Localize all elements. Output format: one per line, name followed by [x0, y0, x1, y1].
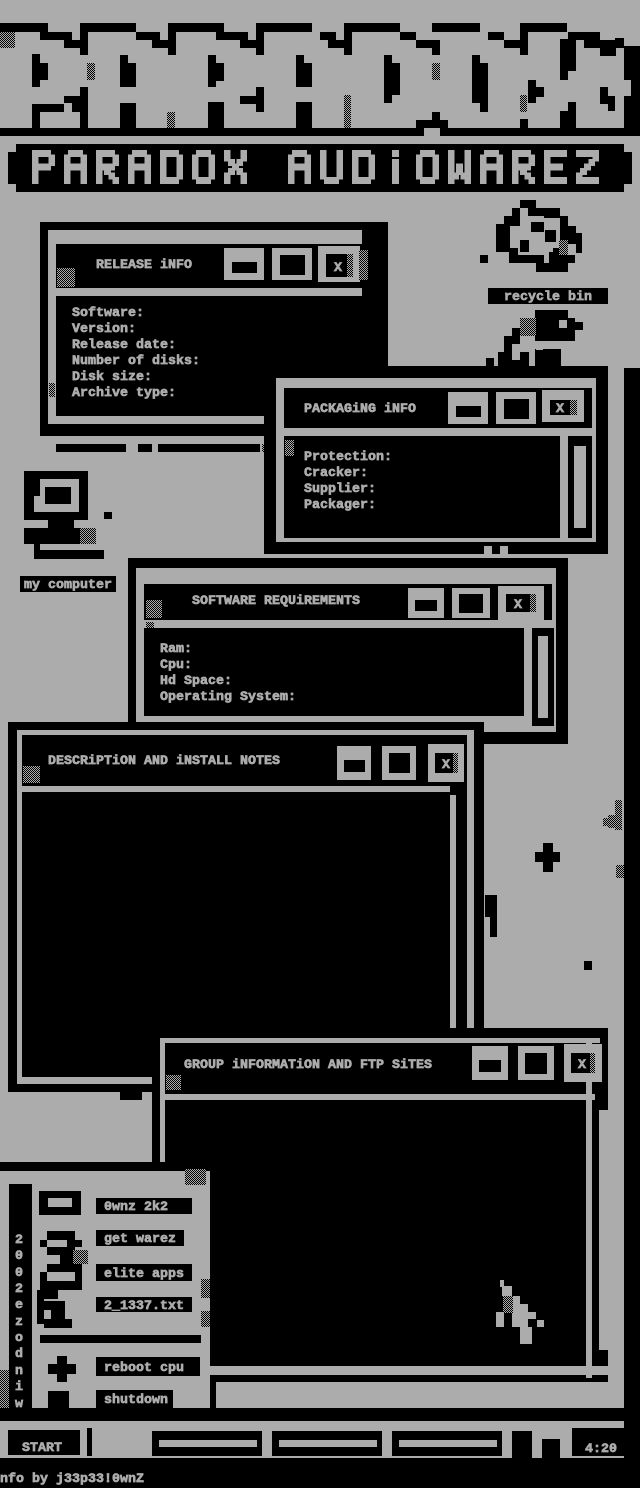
svg-text:i: i — [15, 1380, 23, 1395]
svg-text:e: e — [15, 1298, 23, 1313]
svg-text:X: X — [334, 261, 342, 276]
svg-text:recycle bin: recycle bin — [504, 290, 592, 305]
svg-text:z: z — [15, 1315, 23, 1330]
svg-text:X: X — [514, 598, 522, 613]
svg-text:0wnz 2k2: 0wnz 2k2 — [104, 1200, 168, 1215]
svg-text:Hd Space:: Hd Space: — [160, 674, 232, 689]
svg-text:0: 0 — [15, 1266, 23, 1281]
svg-text:elite apps: elite apps — [104, 1267, 184, 1282]
svg-text:Ram:: Ram: — [160, 642, 192, 657]
svg-text:nfo by j33p33!0wnZ: nfo by j33p33!0wnZ — [0, 1472, 144, 1487]
svg-text:SOFTWARE REQUiREMENTS: SOFTWARE REQUiREMENTS — [192, 594, 360, 609]
svg-text:Version:: Version: — [72, 322, 136, 337]
svg-text:2_1337.txt: 2_1337.txt — [104, 1299, 184, 1314]
svg-text:Cpu:: Cpu: — [160, 658, 192, 673]
svg-text:X: X — [578, 1058, 586, 1073]
svg-text:START: START — [22, 1441, 62, 1456]
svg-text:n: n — [15, 1364, 23, 1379]
svg-text:RELEASE iNFO: RELEASE iNFO — [96, 258, 192, 273]
svg-text:X: X — [442, 758, 450, 773]
svg-text:2: 2 — [15, 1233, 23, 1248]
svg-text:d: d — [15, 1347, 23, 1362]
svg-text:DESCRiPTiON AND iNSTALL NOTES: DESCRiPTiON AND iNSTALL NOTES — [48, 754, 280, 769]
svg-text:shutdown: shutdown — [104, 1393, 168, 1408]
svg-text:0: 0 — [15, 1249, 23, 1264]
svg-text:GROUP iNFORMATiON AND FTP SiTE: GROUP iNFORMATiON AND FTP SiTES — [184, 1058, 432, 1073]
svg-text:PACKAGiNG iNFO: PACKAGiNG iNFO — [304, 402, 416, 417]
svg-text:2: 2 — [15, 1282, 23, 1297]
svg-text:Cracker:: Cracker: — [304, 466, 368, 481]
svg-text:X: X — [556, 402, 564, 417]
svg-text:Archive type:: Archive type: — [72, 386, 176, 401]
svg-text:4:20: 4:20 — [585, 1442, 617, 1457]
svg-text:Operating System:: Operating System: — [160, 690, 296, 705]
svg-text:Number of disks:: Number of disks: — [72, 354, 200, 369]
svg-text:my computer: my computer — [24, 578, 112, 593]
svg-text:Software:: Software: — [72, 306, 144, 321]
svg-text:Protection:: Protection: — [304, 450, 392, 465]
svg-text:get warez: get warez — [104, 1232, 176, 1247]
svg-text:Release date:: Release date: — [72, 338, 176, 353]
svg-text:reboot cpu: reboot cpu — [104, 1361, 184, 1376]
svg-text:Packager:: Packager: — [304, 498, 376, 513]
svg-text:Disk size:: Disk size: — [72, 370, 152, 385]
svg-text:o: o — [15, 1331, 23, 1346]
svg-text:Supplier:: Supplier: — [304, 482, 376, 497]
